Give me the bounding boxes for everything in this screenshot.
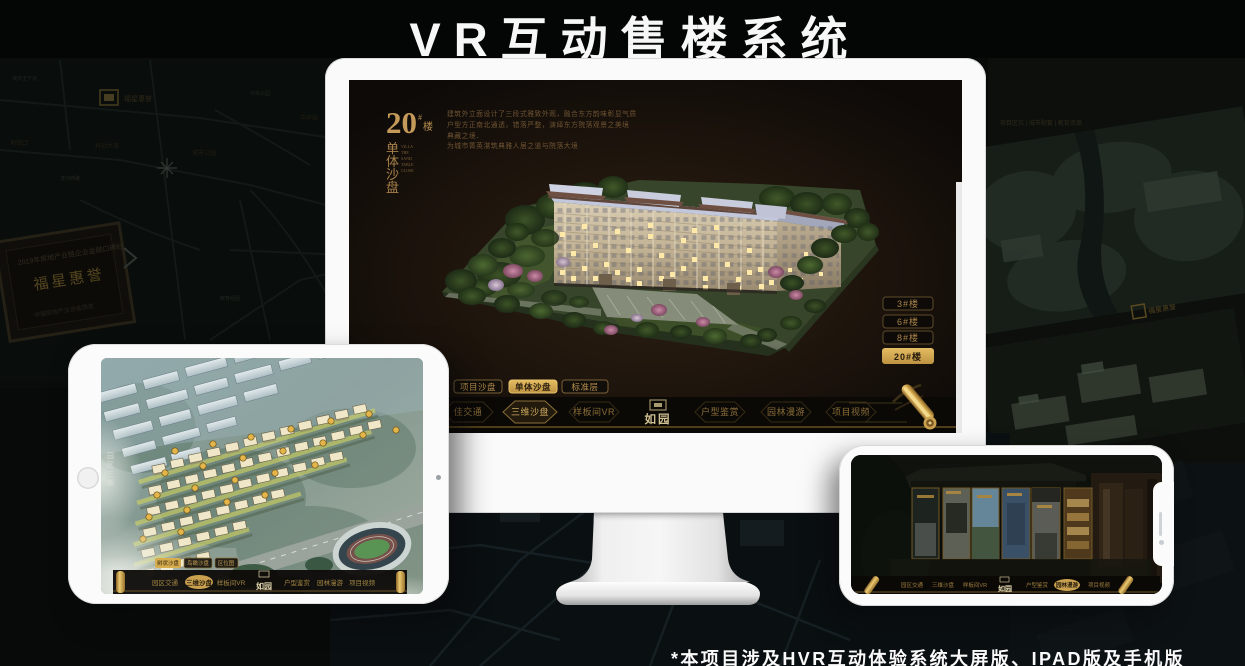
svg-text:滨河西路: 滨河西路 (60, 175, 80, 182)
svg-text:三: 三 (107, 470, 114, 478)
svg-text:城市公园: 城市公园 (192, 149, 216, 157)
svg-text:项目区位 | 城市配套 | 教育资源: 项目区位 | 城市配套 | 教育资源 (1000, 119, 1082, 127)
svg-text:三维沙盘: 三维沙盘 (511, 406, 549, 417)
svg-text:科创大道: 科创大道 (95, 142, 119, 150)
svg-text:园林漫游: 园林漫游 (1056, 581, 1079, 589)
svg-text:CLOSE: CLOSE (401, 168, 414, 173)
svg-text:为城市菁英湛筑典雅人居之道与院落大境: 为城市菁英湛筑典雅人居之道与院落大境 (447, 141, 578, 150)
svg-text:20: 20 (386, 105, 417, 140)
svg-text:VILLA: VILLA (401, 144, 413, 149)
svg-text:20#楼: 20#楼 (894, 351, 922, 362)
svg-text:园区交通: 园区交通 (152, 578, 179, 587)
svg-text:区: 区 (107, 461, 114, 469)
svg-text:树状沙盘: 树状沙盘 (157, 559, 180, 567)
svg-text:项目视频: 项目视频 (1088, 581, 1111, 589)
svg-text:园林漫游: 园林漫游 (767, 406, 805, 417)
svg-text:标准层: 标准层 (571, 382, 598, 392)
svg-text:三维沙盘: 三维沙盘 (932, 581, 955, 589)
svg-text:样板间VR: 样板间VR (573, 406, 615, 417)
svg-text:区位图: 区位图 (218, 559, 235, 567)
svg-text:单体沙盘: 单体沙盘 (515, 382, 551, 392)
svg-text:3#楼: 3#楼 (897, 298, 919, 309)
svg-text:项目视频: 项目视频 (832, 406, 870, 417)
svg-text:户型方正南北通透，错落严整，演绎东方院落观景之美境: 户型方正南北通透，错落严整，演绎东方院落观景之美境 (447, 120, 629, 129)
svg-text:中央公园: 中央公园 (250, 90, 270, 97)
svg-text:THE: THE (401, 150, 409, 155)
svg-text:盘: 盘 (386, 180, 399, 195)
svg-text:户型鉴赏: 户型鉴赏 (284, 578, 311, 587)
svg-text:中环线: 中环线 (300, 114, 318, 122)
svg-text:如园: 如园 (998, 584, 1012, 593)
svg-text:SAND: SAND (401, 156, 412, 161)
svg-text:鸟瞰沙盘: 鸟瞰沙盘 (187, 559, 210, 567)
svg-text:样板间VR: 样板间VR (217, 578, 246, 587)
svg-text:8#楼: 8#楼 (897, 332, 919, 343)
svg-text:户型鉴赏: 户型鉴赏 (1026, 581, 1049, 589)
svg-text:建筑外立面设计了三段式雅致外观，融合东方韵味彰显气质: 建筑外立面设计了三段式雅致外观，融合东方韵味彰显气质 (447, 109, 637, 118)
svg-text:福星惠誉: 福星惠誉 (124, 94, 152, 103)
svg-text:佳交通: 佳交通 (454, 406, 483, 417)
svg-text:城市主干道: 城市主干道 (12, 75, 37, 82)
svg-text:项目沙盘: 项目沙盘 (460, 382, 496, 392)
svg-text:TABLE: TABLE (401, 162, 414, 167)
svg-text:典藏之境．: 典藏之境． (447, 131, 483, 140)
svg-text:三维沙盘: 三维沙盘 (186, 578, 213, 587)
svg-text:样板间VR: 样板间VR (963, 581, 987, 589)
svg-text:园林漫游: 园林漫游 (317, 578, 344, 587)
svg-text:6#楼: 6#楼 (897, 316, 919, 327)
svg-text:期: 期 (107, 479, 114, 487)
svg-text:园区交通: 园区交通 (901, 581, 924, 589)
svg-text:户型鉴赏: 户型鉴赏 (701, 406, 739, 417)
svg-text:地铁口: 地铁口 (10, 139, 28, 147)
svg-text:楼: 楼 (423, 120, 433, 133)
svg-text:教育组团: 教育组团 (220, 295, 240, 302)
svg-text:如园: 如园 (256, 581, 272, 591)
svg-text:如园: 如园 (645, 412, 672, 426)
svg-text:项目视频: 项目视频 (349, 578, 376, 587)
svg-text:园: 园 (107, 452, 114, 460)
svg-text:#: # (418, 113, 422, 122)
